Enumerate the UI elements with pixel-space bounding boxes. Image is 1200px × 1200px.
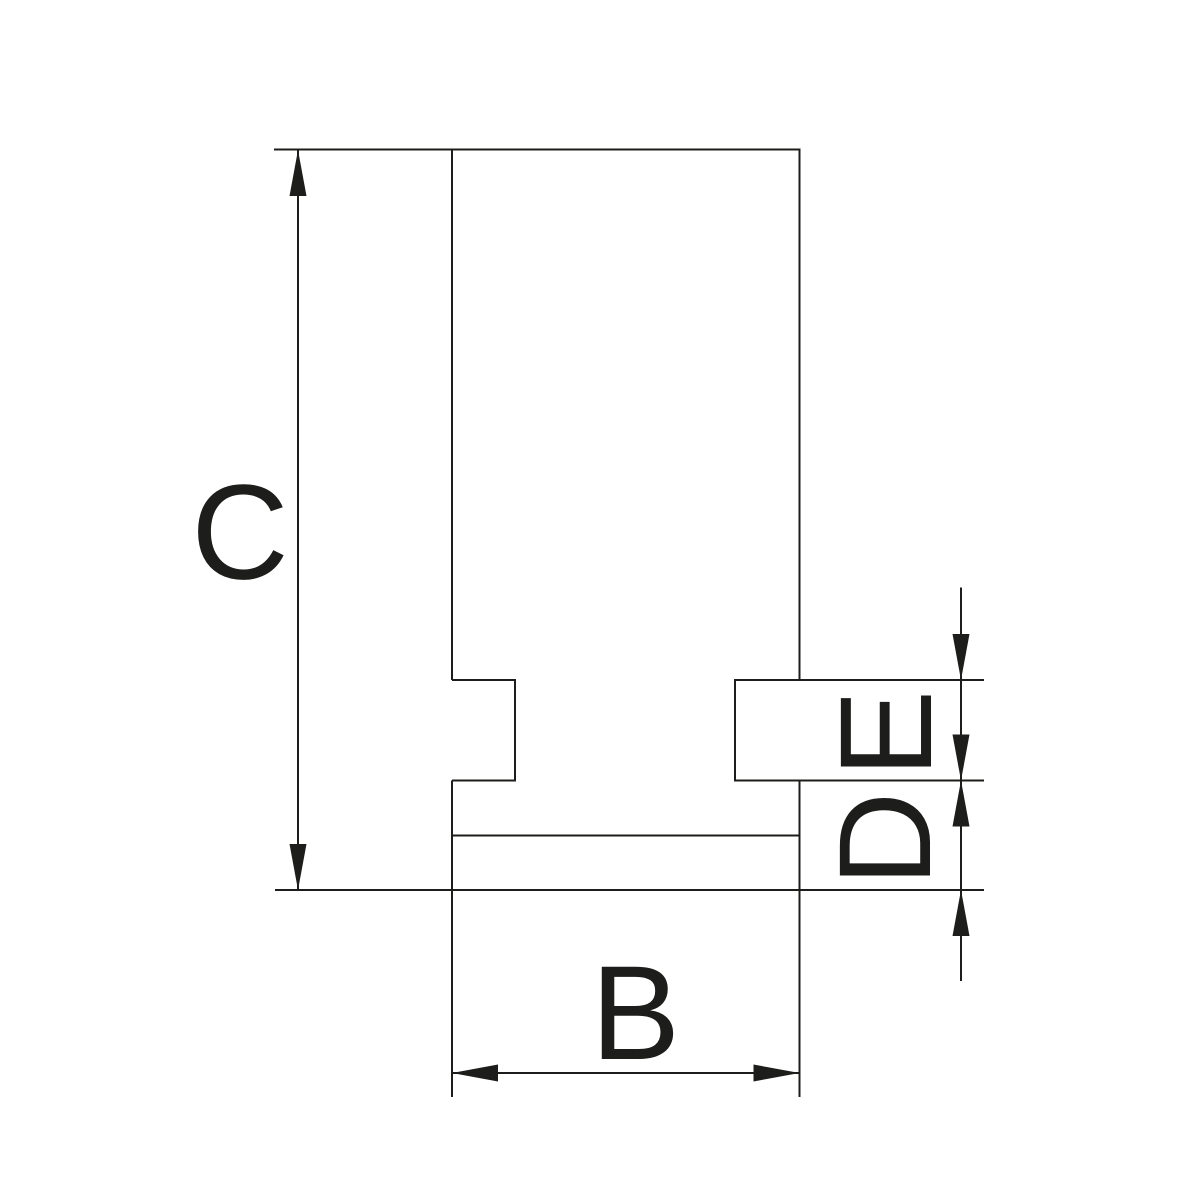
svg-text:E: E <box>812 690 959 777</box>
svg-text:D: D <box>811 792 958 887</box>
svg-text:B: B <box>591 939 680 1088</box>
svg-text:C: C <box>191 457 289 608</box>
